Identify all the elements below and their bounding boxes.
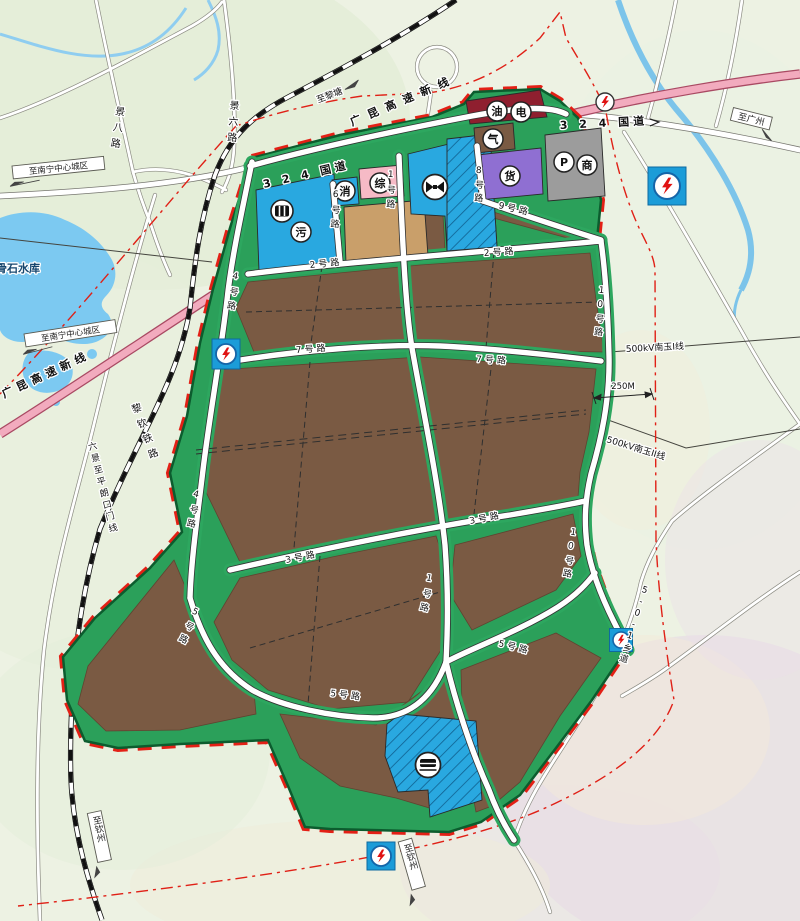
transport-station-icon bbox=[423, 175, 448, 200]
parking-char: P bbox=[560, 156, 568, 169]
sewage-char: 污 bbox=[296, 225, 307, 239]
gas-char: 气 bbox=[487, 132, 499, 146]
commerce-char: 商 bbox=[582, 158, 593, 172]
commerce-icon: 商 bbox=[577, 155, 597, 175]
fire-char: 消 bbox=[340, 184, 351, 198]
electric-icon: 电 bbox=[511, 102, 531, 122]
dim-250m-label: 250M bbox=[611, 382, 635, 392]
reservoir-label: 骨石水库 bbox=[0, 261, 40, 275]
sewage-plant-icon: 污 bbox=[291, 222, 311, 242]
oil-depot-icon: 油 bbox=[487, 101, 507, 121]
planning-map: 油 电 气 货 P 商 消 综 污 bbox=[0, 0, 800, 921]
freight-icon: 货 bbox=[500, 166, 520, 186]
substation-icon bbox=[648, 167, 686, 205]
gas-station-icon: 气 bbox=[483, 129, 503, 149]
train-station-icon bbox=[416, 753, 441, 778]
oil-char: 油 bbox=[492, 104, 503, 118]
power-pylon-icon bbox=[596, 93, 614, 111]
comprehensive-char: 综 bbox=[375, 176, 386, 190]
substation-icon bbox=[212, 339, 240, 369]
parking-icon: P bbox=[554, 152, 574, 172]
water-plant-icon bbox=[271, 200, 293, 222]
electric-char: 电 bbox=[516, 105, 527, 119]
freight-char: 货 bbox=[504, 169, 516, 183]
substation-icon bbox=[367, 842, 395, 870]
